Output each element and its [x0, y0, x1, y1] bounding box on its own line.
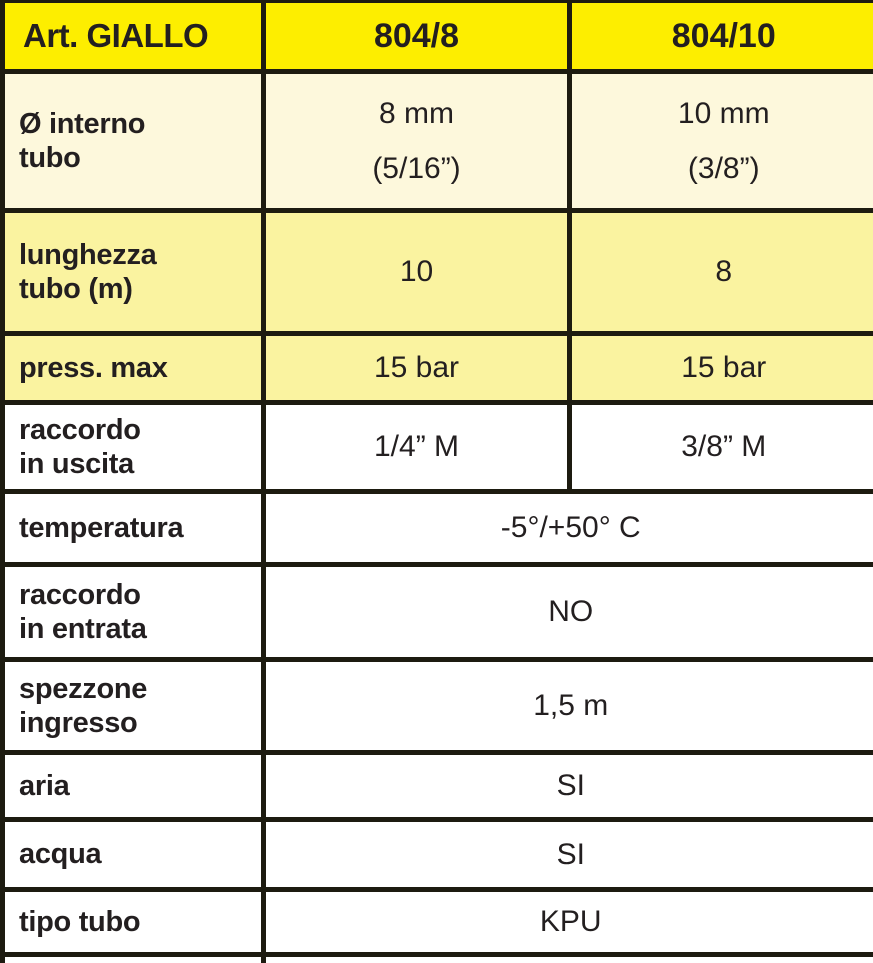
header-row: Art. GIALLO 804/8 804/10	[3, 2, 873, 72]
spec-value-merged: NO	[264, 565, 873, 660]
spec-value: 3/8” M	[570, 403, 873, 492]
table-title: Art. GIALLO	[3, 2, 264, 72]
row-raccordo-uscita: raccordo in uscita 1/4” M 3/8” M	[3, 403, 873, 492]
catalog-spec-page: Art. GIALLO 804/8 804/10 Ø interno tubo …	[0, 0, 873, 963]
spec-value-empty	[264, 955, 873, 963]
spec-value: 15 bar	[570, 334, 873, 403]
spec-value-merged: 1,5 m	[264, 660, 873, 753]
row-label: temperatura	[3, 492, 264, 565]
row-raccordo-entrata: raccordo in entrata NO	[3, 565, 873, 660]
row-label-empty	[3, 955, 264, 963]
row-label: aria	[3, 753, 264, 820]
row-pressione-max: press. max 15 bar 15 bar	[3, 334, 873, 403]
row-acqua: acqua SI	[3, 820, 873, 890]
row-label: Ø interno tubo	[3, 72, 264, 211]
spec-value-merged: SI	[264, 820, 873, 890]
spec-value: 8 mm (5/16”)	[264, 72, 570, 211]
spec-value-merged: -5°/+50° C	[264, 492, 873, 565]
spec-value-merged: KPU	[264, 890, 873, 955]
row-label: tipo tubo	[3, 890, 264, 955]
row-temperatura: temperatura -5°/+50° C	[3, 492, 873, 565]
spec-value: 10	[264, 211, 570, 334]
spec-value: 1/4” M	[264, 403, 570, 492]
spec-value-merged: SI	[264, 753, 873, 820]
row-label: raccordo in entrata	[3, 565, 264, 660]
row-label: acqua	[3, 820, 264, 890]
spec-value: 15 bar	[264, 334, 570, 403]
spec-table: Art. GIALLO 804/8 804/10 Ø interno tubo …	[0, 0, 873, 963]
row-aria: aria SI	[3, 753, 873, 820]
row-label: spezzone ingresso	[3, 660, 264, 753]
row-label: lunghezza tubo (m)	[3, 211, 264, 334]
row-tipo-tubo: tipo tubo KPU	[3, 890, 873, 955]
row-diametro-interno: Ø interno tubo 8 mm (5/16”) 10 mm (3/8”)	[3, 72, 873, 211]
row-label: press. max	[3, 334, 264, 403]
row-label: raccordo in uscita	[3, 403, 264, 492]
row-partial-cutoff	[3, 955, 873, 963]
row-lunghezza-tubo: lunghezza tubo (m) 10 8	[3, 211, 873, 334]
column-header-804-10: 804/10	[570, 2, 873, 72]
row-spezzone-ingresso: spezzone ingresso 1,5 m	[3, 660, 873, 753]
spec-value: 8	[570, 211, 873, 334]
column-header-804-8: 804/8	[264, 2, 570, 72]
spec-value: 10 mm (3/8”)	[570, 72, 873, 211]
